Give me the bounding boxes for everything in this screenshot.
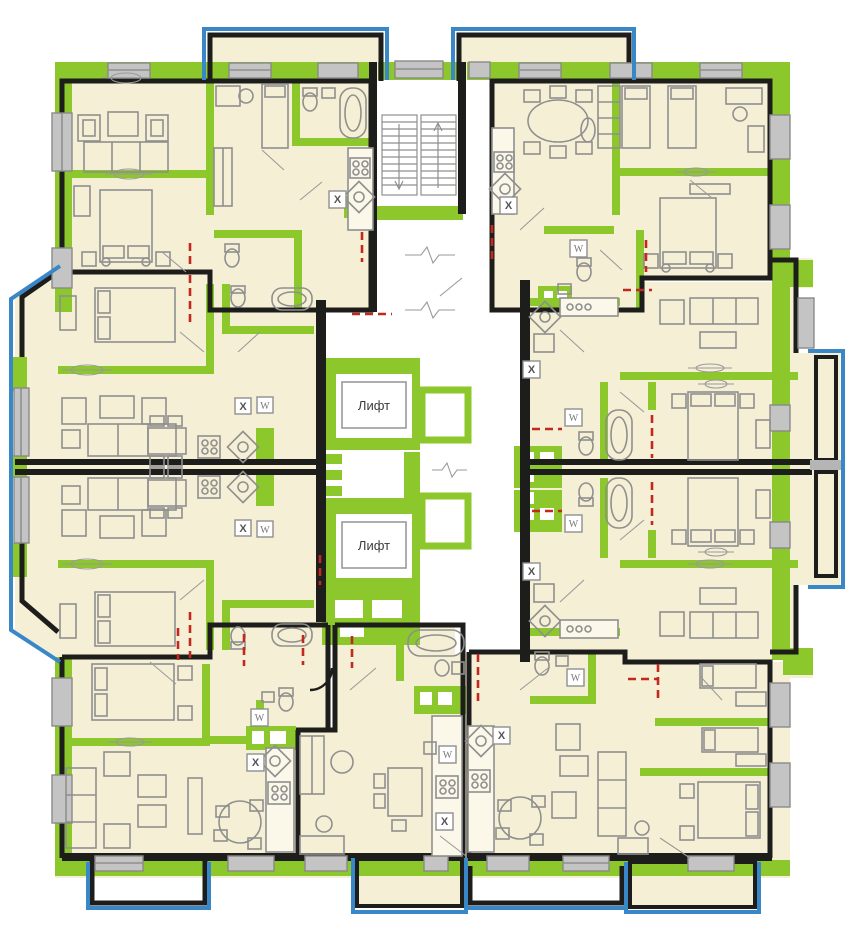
svg-text:W: W (260, 525, 270, 536)
svg-text:W: W (569, 413, 579, 424)
svg-text:X: X (239, 523, 247, 535)
svg-text:X: X (441, 816, 449, 828)
elevator-1-label: Лифт (358, 398, 390, 413)
svg-text:W: W (255, 713, 265, 724)
svg-text:X: X (528, 566, 536, 578)
stove-mark: X (523, 563, 540, 580)
washer-mark: W (565, 409, 582, 426)
stove-mark: X (523, 361, 540, 378)
svg-text:X: X (528, 364, 536, 376)
floor-plan-svg: Лифт Лифт (0, 0, 850, 936)
svg-text:W: W (443, 750, 453, 761)
svg-text:W: W (260, 401, 270, 412)
washer-mark: W (567, 669, 584, 686)
washer-mark: W (257, 397, 273, 413)
elevator-2-label: Лифт (358, 538, 390, 553)
washer-mark: W (570, 240, 587, 257)
stove-mark: X (247, 754, 264, 771)
washer-mark: W (439, 746, 456, 763)
washer-mark: W (251, 709, 268, 726)
svg-text:X: X (498, 730, 506, 742)
stove-mark: X (329, 191, 346, 208)
floor-plan-page: Лифт Лифт (0, 0, 850, 936)
stove-mark: X (500, 197, 517, 214)
svg-text:X: X (334, 194, 342, 206)
stove-mark: X (235, 398, 251, 414)
elevator-1: Лифт (342, 382, 406, 428)
elevator-2: Лифт (342, 522, 406, 568)
washer-mark: W (257, 521, 273, 537)
svg-text:X: X (239, 401, 247, 413)
svg-text:X: X (252, 757, 260, 769)
svg-text:W: W (569, 519, 579, 530)
washer-mark: W (565, 515, 582, 532)
stove-mark: X (493, 727, 510, 744)
svg-text:W: W (574, 244, 584, 255)
svg-text:X: X (505, 200, 513, 212)
stove-mark: X (436, 813, 453, 830)
svg-text:W: W (571, 673, 581, 684)
stove-mark: X (235, 520, 251, 536)
